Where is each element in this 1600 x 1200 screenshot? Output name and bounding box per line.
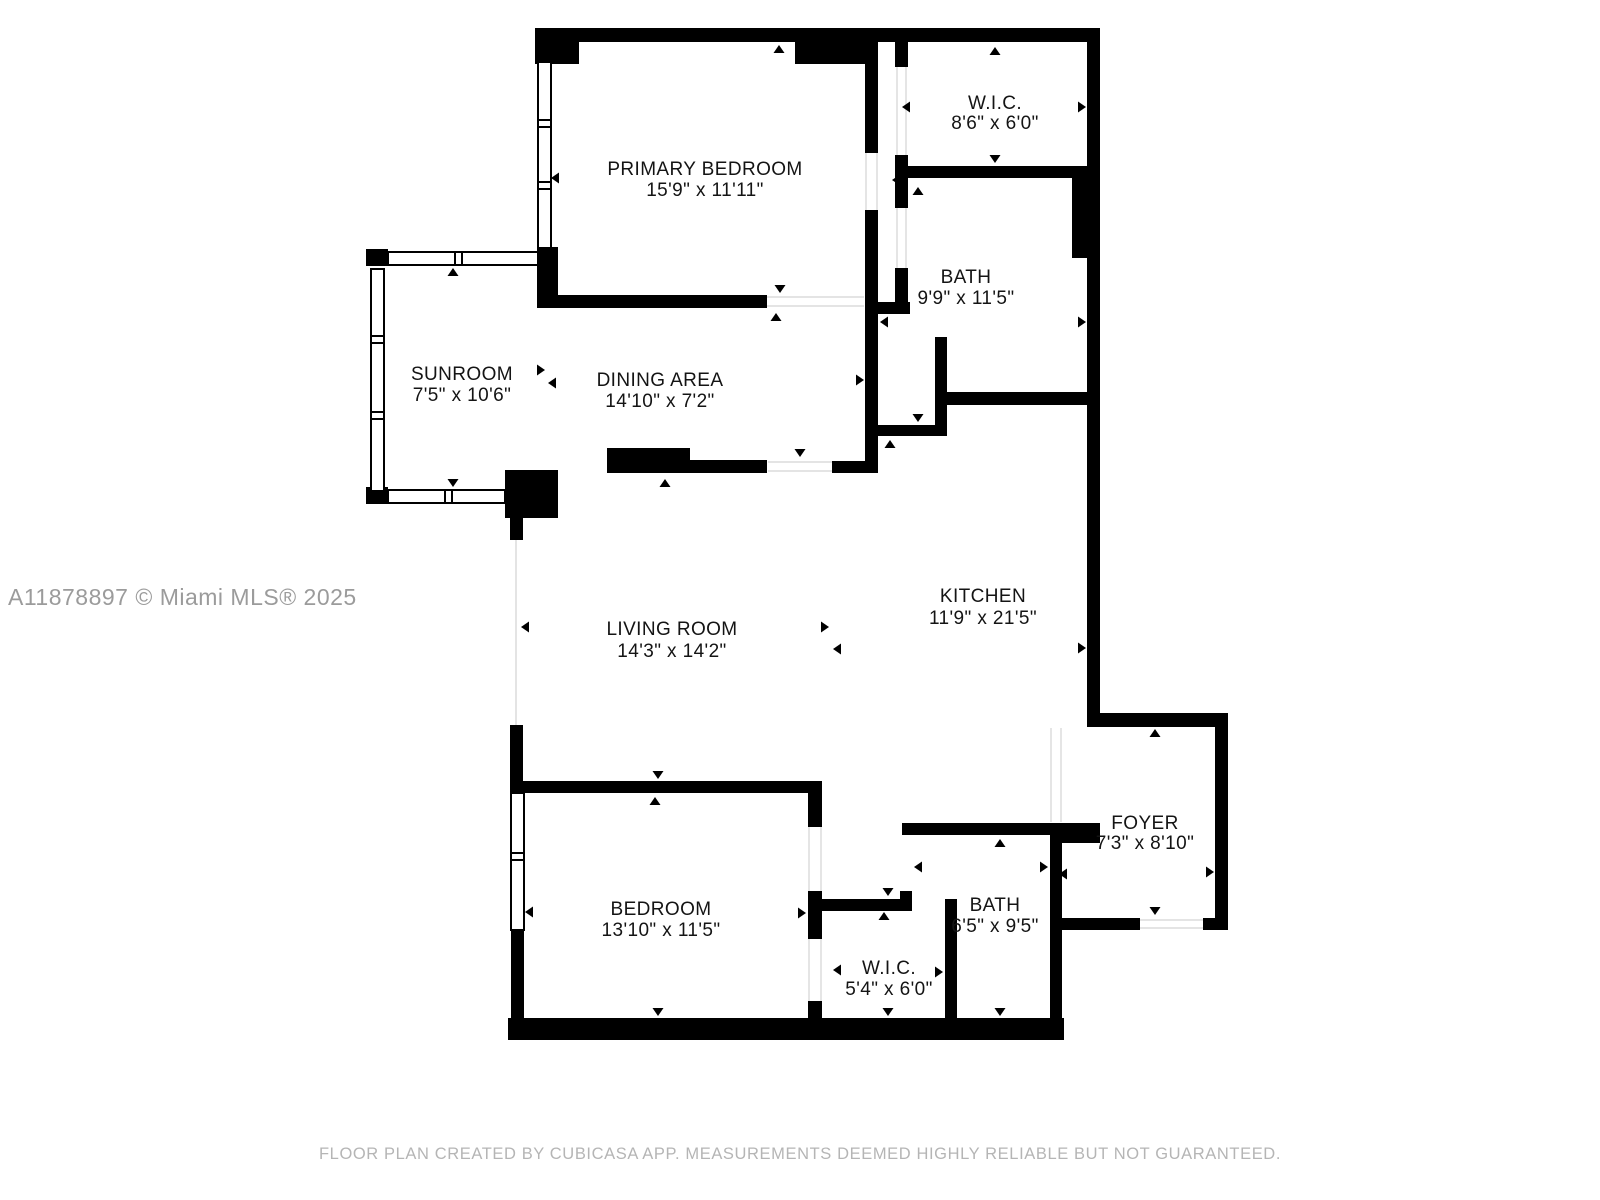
room-label-bath-bottom: BATH (970, 895, 1021, 916)
door-marker-down-icon (448, 479, 459, 487)
door-marker-up-icon (771, 313, 782, 321)
door-marker-up-icon (913, 187, 924, 195)
door-marker-down-icon (883, 1008, 894, 1016)
wall-segment (808, 1001, 822, 1040)
wall-segment (1072, 177, 1087, 258)
wall-segment (1087, 28, 1100, 727)
wall-segment (1203, 918, 1228, 930)
door-marker-up-icon (990, 47, 1001, 55)
room-dims-bath-top: 9'9" x 11'5" (917, 288, 1014, 309)
wall-segment (865, 42, 878, 153)
wall-segment (550, 295, 767, 308)
door-marker-down-icon (653, 1008, 664, 1016)
door-marker-down-icon (913, 414, 924, 422)
room-dims-foyer: 7'3" x 8'10" (1096, 833, 1194, 854)
room-dims-primary-bedroom: 15'9" x 11'11" (646, 180, 764, 201)
door-marker-left-icon (521, 622, 529, 633)
wall-segment (865, 303, 878, 473)
wall-segment (832, 461, 878, 473)
wall-segment (537, 247, 558, 308)
footer-disclaimer: FLOOR PLAN CREATED BY CUBICASA APP. MEAS… (0, 1145, 1600, 1164)
room-dims-kitchen: 11'9" x 21'5" (929, 608, 1037, 629)
door-marker-down-icon (1150, 907, 1161, 915)
wall-segment (795, 28, 867, 64)
wall-segment (900, 891, 912, 911)
wall-segment (1062, 918, 1140, 930)
door-marker-right-icon (856, 375, 864, 386)
door-marker-up-icon (650, 797, 661, 805)
wall-segment (868, 425, 945, 436)
room-dims-living-room: 14'3" x 14'2" (617, 641, 726, 662)
door-marker-up-icon (995, 839, 1006, 847)
door-marker-right-icon (1078, 102, 1086, 113)
door-marker-down-icon (775, 285, 786, 293)
wall-segment (535, 28, 579, 64)
room-dims-dining-area: 14'10" x 7'2" (605, 391, 714, 412)
door-marker-right-icon (537, 365, 545, 376)
wall-segment (1215, 713, 1228, 930)
room-dims-wic-top: 8'6" x 6'0" (951, 113, 1038, 134)
door-marker-right-icon (1078, 643, 1086, 654)
room-label-bath-top: BATH (941, 267, 992, 288)
window-band (371, 269, 384, 491)
mls-watermark: A11878897 © Miami MLS® 2025 (8, 584, 357, 611)
floor-plan-page: A11878897 © Miami MLS® 2025 PRIMARY BEDR… (0, 0, 1600, 1200)
door-marker-left-icon (551, 173, 559, 184)
wall-segment (690, 460, 767, 473)
door-marker-right-icon (935, 967, 943, 978)
wall-segment (895, 42, 908, 67)
room-label-foyer: FOYER (1111, 813, 1178, 834)
door-marker-down-icon (883, 888, 894, 896)
door-marker-left-icon (525, 907, 533, 918)
door-marker-up-icon (448, 268, 459, 276)
wall-segment (808, 891, 822, 939)
door-marker-up-icon (774, 45, 785, 53)
room-label-primary-bedroom: PRIMARY BEDROOM (607, 159, 802, 180)
door-marker-up-icon (1150, 729, 1161, 737)
wall-segment (511, 781, 810, 793)
room-dims-sunroom: 7'5" x 10'6" (413, 385, 511, 406)
wall-segment (808, 781, 822, 827)
wall-segment (366, 249, 388, 266)
wall-segment (902, 823, 1052, 835)
room-dims-bath-bottom: 6'5" x 9'5" (951, 916, 1038, 937)
room-dims-wic-bottom: 5'4" x 6'0" (845, 979, 932, 1000)
wall-segment (1050, 835, 1062, 1038)
room-label-kitchen: KITCHEN (940, 586, 1026, 607)
door-marker-left-icon (914, 862, 922, 873)
door-marker-right-icon (1040, 862, 1048, 873)
window-band (538, 62, 551, 248)
room-label-sunroom: SUNROOM (411, 364, 513, 385)
door-marker-up-icon (879, 912, 890, 920)
wall-segment (945, 392, 1087, 405)
door-marker-right-icon (821, 622, 829, 633)
door-marker-right-icon (798, 908, 806, 919)
room-label-wic-bottom: W.I.C. (862, 958, 916, 979)
wall-segment (607, 448, 690, 473)
room-label-wic-top: W.I.C. (968, 93, 1022, 114)
wall-segment (935, 337, 947, 436)
door-marker-left-icon (833, 965, 841, 976)
room-label-dining-area: DINING AREA (597, 370, 724, 391)
window-band (388, 490, 505, 503)
wall-segment (510, 513, 523, 540)
door-marker-down-icon (995, 1008, 1006, 1016)
door-marker-left-icon (548, 378, 556, 389)
wall-segment (822, 899, 912, 911)
wall-segment (865, 210, 878, 303)
door-marker-up-icon (660, 479, 671, 487)
room-label-living-room: LIVING ROOM (606, 619, 737, 640)
wall-segment (505, 470, 558, 518)
door-marker-up-icon (885, 440, 896, 448)
wall-segment (908, 166, 1087, 178)
window-band (511, 793, 524, 930)
door-marker-right-icon (1078, 317, 1086, 328)
door-marker-down-icon (653, 771, 664, 779)
door-marker-down-icon (795, 449, 806, 457)
door-marker-right-icon (1206, 867, 1214, 878)
door-marker-down-icon (990, 155, 1001, 163)
room-dims-bedroom: 13'10" x 11'5" (602, 920, 721, 941)
room-label-bedroom: BEDROOM (611, 899, 712, 920)
wall-segment (1087, 713, 1228, 727)
door-marker-left-icon (833, 644, 841, 655)
door-marker-left-icon (880, 317, 888, 328)
wall-segment (508, 1018, 1064, 1040)
